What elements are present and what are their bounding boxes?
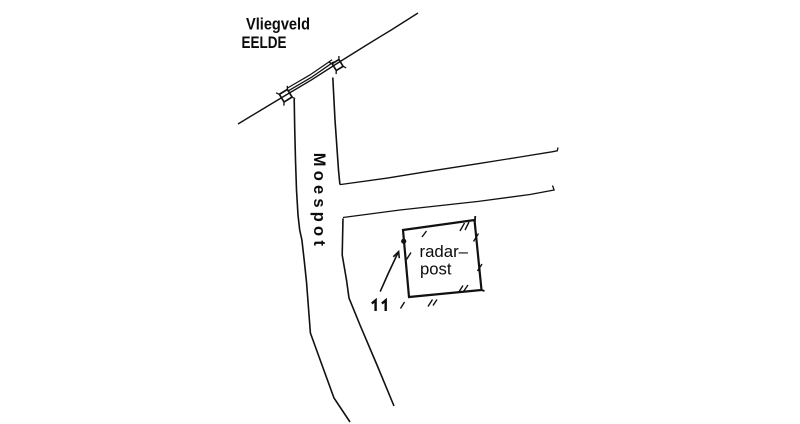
svg-text:post: post — [420, 261, 452, 279]
svg-text:Vliegveld: Vliegveld — [246, 16, 310, 34]
svg-text:Moespot: Moespot — [310, 153, 328, 250]
svg-text:EELDE: EELDE — [242, 34, 287, 52]
svg-text:radar–: radar– — [420, 243, 469, 261]
